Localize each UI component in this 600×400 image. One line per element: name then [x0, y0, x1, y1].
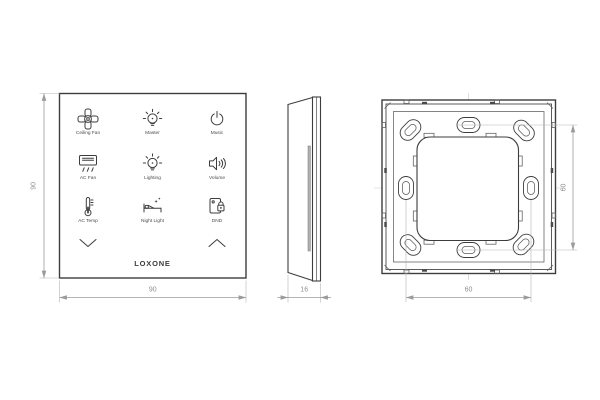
side-view: 16	[278, 97, 332, 303]
central-opening	[413, 133, 522, 244]
loxone-logo: LOXONE	[134, 259, 170, 268]
side-depth-dimension: 16	[278, 275, 332, 303]
button-label: DND	[212, 218, 223, 224]
dimension-value: 90	[31, 182, 38, 190]
front-width-dimension: 90	[60, 281, 247, 303]
back-view: 60 60	[374, 93, 578, 302]
dimension-value: 90	[149, 287, 157, 294]
front-view: Ceiling Fan Master Music	[31, 94, 247, 303]
screw-slot-left	[399, 177, 414, 200]
button-label: AC Temp	[78, 218, 98, 224]
front-height-dimension: 90	[31, 94, 60, 279]
button-label: Ceiling Fan	[76, 130, 101, 136]
dimensional-drawing-page: Ceiling Fan Master Music	[0, 0, 600, 400]
button-label: Lighting	[144, 175, 161, 181]
button-label: Master	[145, 130, 160, 136]
button-label: Night Light	[141, 218, 165, 224]
screw-slot-right	[524, 177, 539, 200]
dimension-value: 60	[561, 184, 568, 192]
dimension-value: 16	[300, 287, 308, 294]
button-label: Music	[211, 130, 224, 136]
dimension-value: 60	[465, 287, 473, 294]
side-sensor-strip	[308, 146, 310, 251]
opening-outline	[417, 137, 519, 241]
drawing-canvas: Ceiling Fan Master Music	[0, 0, 600, 400]
button-label: AC Fan	[80, 175, 97, 181]
button-label: Volume	[209, 175, 225, 181]
